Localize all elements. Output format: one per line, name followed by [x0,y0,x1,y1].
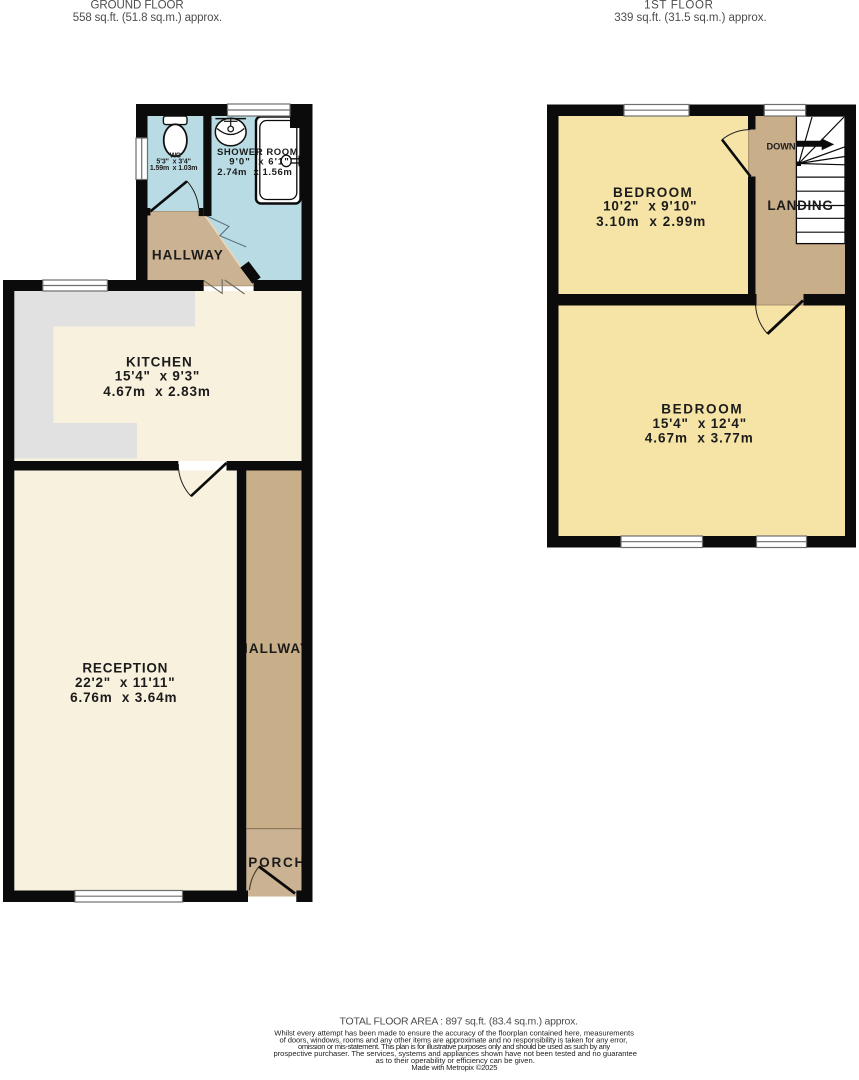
svg-text:9'0" x 6'1": 9'0" x 6'1" [229,156,289,167]
svg-text:3.10m x 2.99m: 3.10m x 2.99m [596,214,705,229]
svg-text:15'4" x 12'4": 15'4" x 12'4" [653,416,747,431]
svg-text:4.67m x 3.77m: 4.67m x 3.77m [645,431,753,446]
svg-text:1ST FLOOR: 1ST FLOOR [644,0,713,12]
svg-text:BEDROOM: BEDROOM [661,402,741,417]
svg-text:15'4" x 9'3": 15'4" x 9'3" [115,369,200,384]
svg-text:Made with Metropix ©2025: Made with Metropix ©2025 [411,1063,497,1072]
svg-text:BEDROOM: BEDROOM [613,185,692,200]
svg-text:339 sq.ft. (31.5 sq.m.) approx: 339 sq.ft. (31.5 sq.m.) approx. [614,12,766,24]
svg-text:6.76m x 3.64m: 6.76m x 3.64m [70,690,176,705]
svg-text:HALLWAY: HALLWAY [238,641,309,656]
svg-text:RECEPTION: RECEPTION [82,661,167,676]
svg-text:LANDING: LANDING [767,198,833,213]
svg-text:22'2" x 11'11": 22'2" x 11'11" [75,675,175,690]
svg-text:1.59m x 1.03m: 1.59m x 1.03m [150,165,198,172]
svg-text:PORCH: PORCH [248,855,304,870]
svg-text:GROUND FLOOR: GROUND FLOOR [91,0,184,12]
svg-text:4.67m x 2.83m: 4.67m x 2.83m [103,384,210,399]
svg-text:558 sq.ft. (51.8 sq.m.) approx: 558 sq.ft. (51.8 sq.m.) approx. [73,12,222,24]
svg-text:10'2" x 9'10": 10'2" x 9'10" [603,199,696,214]
svg-text:2.74m x 1.56m: 2.74m x 1.56m [217,167,292,178]
svg-text:KITCHEN: KITCHEN [126,355,192,370]
svg-text:DOWN: DOWN [766,141,795,151]
svg-text:HALLWAY: HALLWAY [152,247,223,262]
svg-text:TOTAL FLOOR AREA : 897 sq.ft.: TOTAL FLOOR AREA : 897 sq.ft. (83.4 sq.m… [340,1015,579,1027]
